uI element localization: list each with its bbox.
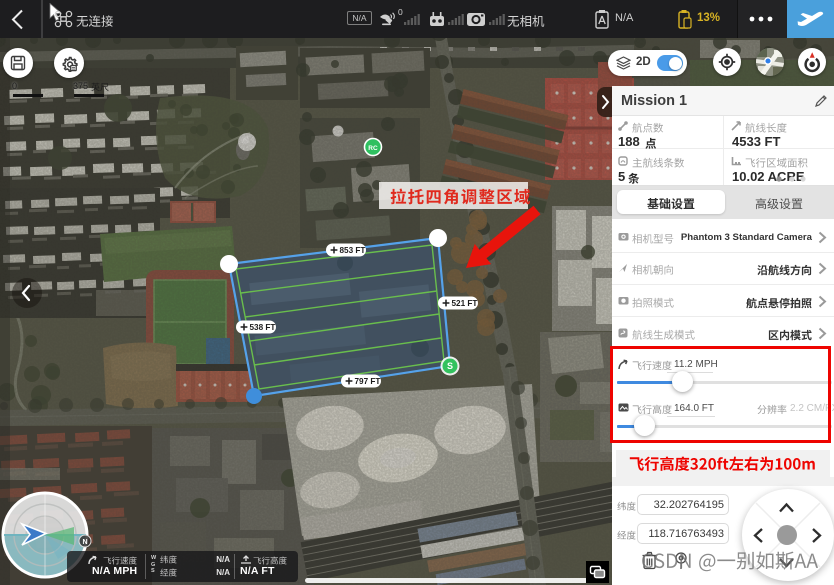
svg-text:797 FT: 797 FT [355,377,381,386]
svg-text:521 FT: 521 FT [452,299,478,308]
svg-text:N: N [82,539,87,546]
svg-text:853 FT: 853 FT [340,246,366,255]
svg-text:S: S [447,361,453,371]
svg-text:RC: RC [368,145,378,152]
svg-text:538 FT: 538 FT [250,323,276,332]
